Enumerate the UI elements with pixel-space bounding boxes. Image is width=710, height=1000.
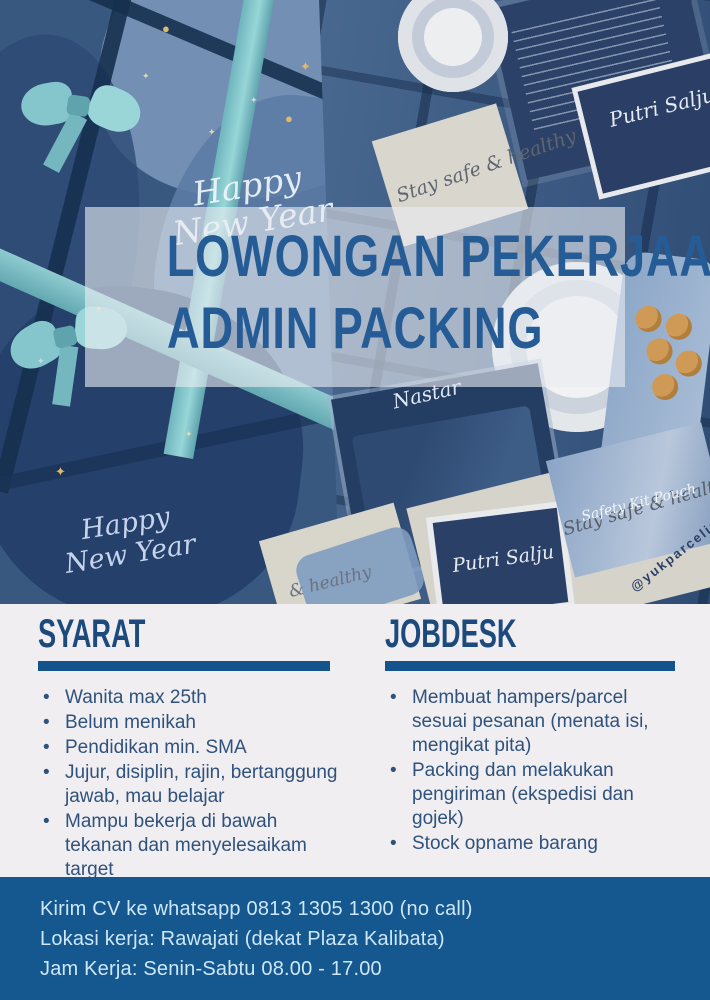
list-item: Pendidikan min. SMA [38,736,346,760]
heading-underline [385,661,675,671]
hampers-photo-collage: ● ✦ ✦ ✦ ✦ ● ✦ ✦ ✦ ✦ Happ [0,0,710,604]
work-location: Lokasi kerja: Rawajati (dekat Plaza Kali… [40,924,690,954]
sparkle-icon: ● [285,112,293,125]
sparkle-icon: ✦ [55,465,66,478]
list-item: Wanita max 25th [38,686,346,710]
sparkle-icon: ✦ [208,128,216,137]
job-vacancy-poster: ● ✦ ✦ ✦ ✦ ● ✦ ✦ ✦ ✦ Happ [0,0,710,1000]
jobdesk-heading: JOBDESK [385,616,589,652]
heading-underline [38,661,330,671]
contact-footer: Kirim CV ke whatsapp 0813 1305 1300 (no … [0,877,710,1000]
poster-title-line2: ADMIN PACKING [167,293,543,365]
poster-title-line1: LOWONGAN PEKERJAAN [167,221,710,293]
syarat-column: SYARAT Wanita max 25th Belum menikah Pen… [38,616,346,908]
syarat-heading: SYARAT [38,616,247,652]
list-item: Membuat hampers/parcel sesuai pesanan (m… [385,686,685,758]
sparkle-icon: ✦ [142,72,150,81]
sparkle-icon: ✦ [185,430,193,439]
sparkle-icon: ✦ [300,60,311,73]
details-section: SYARAT Wanita max 25th Belum menikah Pen… [0,604,710,877]
sparkle-icon: ● [162,22,170,35]
sparkle-icon: ✦ [250,96,258,105]
sparkle-icon: ✦ [37,357,45,366]
list-item: Mampu bekerja di bawah tekanan dan menye… [38,810,346,882]
contact-whatsapp: Kirim CV ke whatsapp 0813 1305 1300 (no … [40,894,690,924]
work-hours: Jam Kerja: Senin-Sabtu 08.00 - 17.00 [40,954,690,984]
title-banner: LOWONGAN PEKERJAAN ADMIN PACKING [85,207,625,387]
jobdesk-list: Membuat hampers/parcel sesuai pesanan (m… [385,686,685,856]
list-item: Jujur, disiplin, rajin, bertanggung jawa… [38,761,346,809]
jobdesk-column: JOBDESK Membuat hampers/parcel sesuai pe… [385,616,685,857]
syarat-list: Wanita max 25th Belum menikah Pendidikan… [38,686,346,907]
list-item: Belum menikah [38,711,346,735]
list-item: Stock opname barang [385,832,685,856]
list-item: Packing dan melakukan pengiriman (eksped… [385,759,685,831]
